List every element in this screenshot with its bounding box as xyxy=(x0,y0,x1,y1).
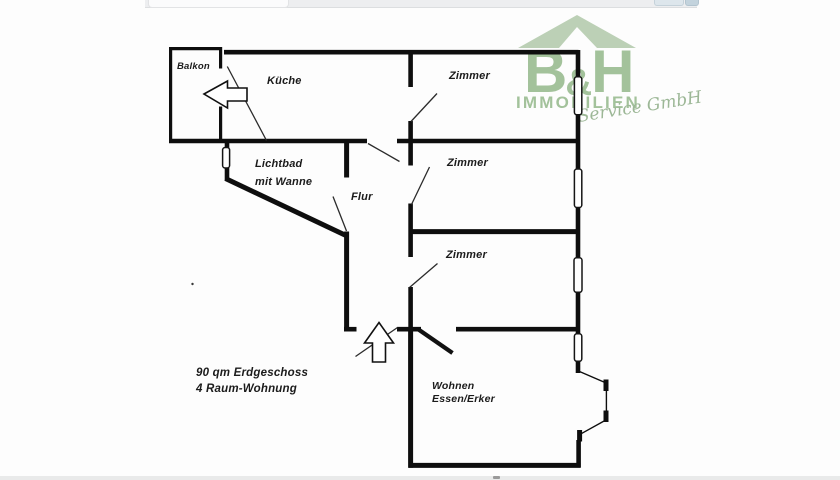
plan-info-line2: 4 Raum-Wohnung xyxy=(196,381,308,397)
exterior-walls xyxy=(224,50,581,468)
windows xyxy=(223,77,582,362)
room-label-wohnen-line1: Wohnen xyxy=(432,380,495,393)
door-swing-lines xyxy=(227,67,452,357)
entrance-arrow-icon xyxy=(365,323,394,363)
room-label-zimmer-middle: Zimmer xyxy=(447,157,488,169)
room-label-lichtbad: Lichtbad mit Wanne xyxy=(255,156,312,191)
room-label-lichtbad-line2: mit Wanne xyxy=(255,174,312,192)
room-label-flur: Flur xyxy=(351,191,373,203)
window-icon xyxy=(574,77,581,115)
plan-info-text: 90 qm Erdgeschoss 4 Raum-Wohnung xyxy=(196,365,308,397)
room-label-lichtbad-line1: Lichtbad xyxy=(255,156,312,174)
plan-info-line1: 90 qm Erdgeschoss xyxy=(196,365,308,381)
balcony-arrow-icon xyxy=(204,81,247,108)
room-label-balkon: Balkon xyxy=(177,61,210,72)
room-label-wohnen: Wohnen Essen/Erker xyxy=(432,380,495,406)
room-label-kueche: Küche xyxy=(267,75,302,87)
floor-plan-drawing xyxy=(0,0,840,480)
room-label-zimmer-bottom: Zimmer xyxy=(446,249,487,261)
window-icon xyxy=(223,148,230,169)
window-icon xyxy=(574,169,581,208)
erker-bay xyxy=(580,372,607,442)
screenshot-root: B & H IMMOBILIEN Service GmbH xyxy=(0,0,840,480)
stray-dot-mark xyxy=(191,283,193,285)
room-label-wohnen-line2: Essen/Erker xyxy=(432,393,495,406)
window-icon xyxy=(574,258,582,293)
window-icon xyxy=(574,334,581,362)
room-label-zimmer-top: Zimmer xyxy=(449,70,490,82)
